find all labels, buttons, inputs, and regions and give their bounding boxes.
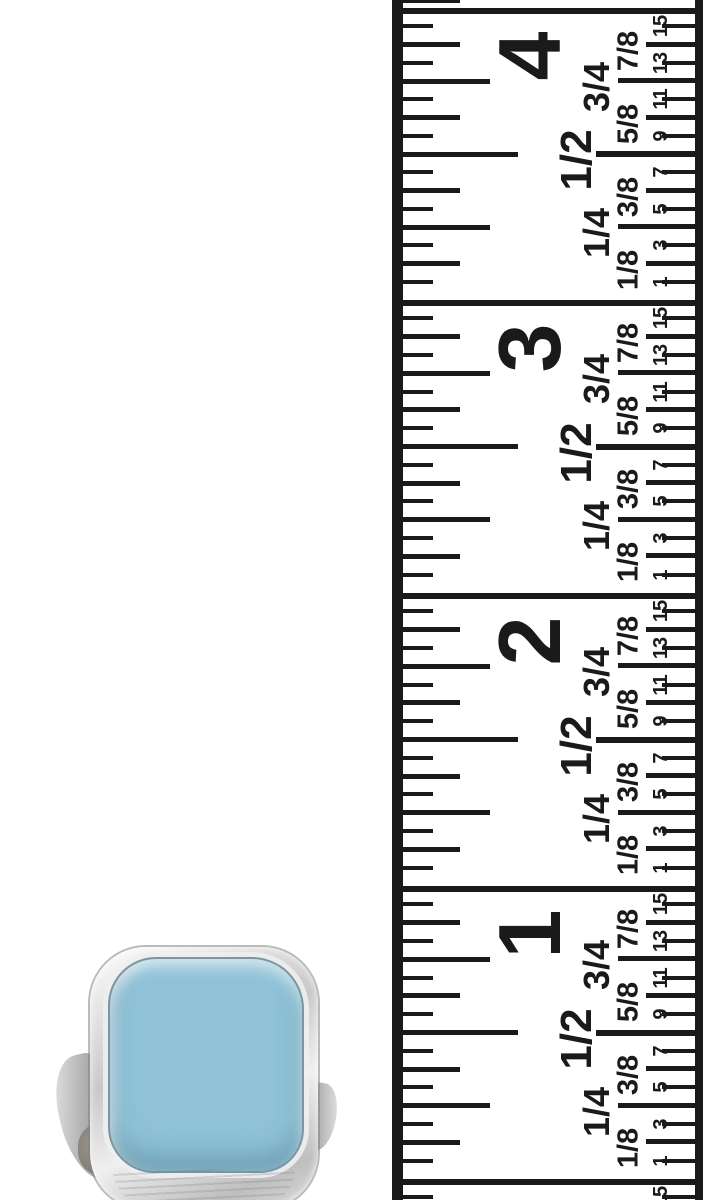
sixteenth-number-text: 13 <box>651 637 671 659</box>
ruler-inch-segment: 211/831/453/871/295/8113/4137/815 <box>390 593 703 886</box>
left-tick <box>403 1103 490 1108</box>
right-tick <box>596 151 695 157</box>
sixteenth-number-text: 5 <box>651 496 671 507</box>
left-tick <box>403 225 490 230</box>
left-tick <box>403 407 460 412</box>
fraction-label-text: 1/8 <box>615 1128 644 1168</box>
sixteenth-number-text: 15 <box>651 1186 671 1200</box>
fraction-label-text: 7/8 <box>615 615 644 655</box>
left-tick <box>403 152 518 157</box>
right-tick <box>646 993 695 998</box>
ruler: 411/831/453/871/295/8113/4137/815311/831… <box>390 0 703 1200</box>
right-tick <box>646 553 695 558</box>
left-tick <box>403 1012 433 1016</box>
left-tick <box>403 1067 460 1072</box>
fraction-label-text: 1/4 <box>579 501 615 551</box>
right-tick <box>646 334 695 339</box>
left-tick <box>403 188 460 193</box>
left-tick <box>403 353 433 357</box>
left-tick <box>403 316 433 320</box>
left-tick <box>403 444 518 449</box>
right-tick <box>646 773 695 778</box>
left-tick <box>403 737 518 742</box>
right-tick <box>646 42 695 47</box>
fraction-label-text: 1/2 <box>555 422 599 483</box>
sixteenth-number-text: 15 <box>651 307 671 329</box>
right-tick <box>618 810 695 815</box>
fraction-label-text: 5/8 <box>615 103 644 143</box>
fraction-label-text: 3/8 <box>615 762 644 802</box>
fraction-label-text: 3/8 <box>615 469 644 509</box>
right-tick <box>646 407 695 412</box>
fraction-label-text: 3/4 <box>579 354 615 404</box>
sixteenth-number-text: 13 <box>651 52 671 74</box>
left-tick <box>403 42 460 47</box>
sixteenth-number-text: 15 <box>651 893 671 915</box>
sixteenth-number-text: 13 <box>651 344 671 366</box>
sixteenth-number-text: 7 <box>651 459 671 470</box>
left-tick <box>403 627 460 632</box>
left-tick <box>403 700 460 705</box>
inch-number-text: 3 <box>486 324 574 373</box>
right-tick <box>646 188 695 193</box>
left-tick <box>403 170 433 174</box>
sixteenth-number-text: 11 <box>651 89 671 110</box>
sixteenth-number-text: 15 <box>651 600 671 622</box>
sixteenth-number-text: 1 <box>651 862 671 873</box>
left-tick <box>403 371 490 376</box>
left-tick <box>403 280 433 284</box>
left-tick <box>403 554 460 559</box>
sixteenth-number-text: 5 <box>651 203 671 214</box>
left-tick <box>403 683 433 687</box>
left-tick <box>403 334 460 339</box>
ruler-inch-segment: 11/831/453/871/295/8113/4137/815 <box>390 1179 703 1200</box>
ruler-inch-segment: 311/831/453/871/295/8113/4137/815 <box>390 300 703 593</box>
sixteenth-number-text: 7 <box>651 167 671 178</box>
left-tick <box>403 243 433 247</box>
left-tick <box>403 939 433 943</box>
fraction-label-text: 1/2 <box>555 129 599 190</box>
right-tick <box>646 627 695 632</box>
inch-line <box>392 8 703 14</box>
left-tick <box>403 1049 433 1053</box>
inch-number-text: 1 <box>486 910 574 959</box>
inch-number-text: 4 <box>486 32 574 81</box>
left-tick <box>403 829 433 833</box>
larimar-stone <box>108 957 304 1173</box>
right-tick <box>596 737 695 743</box>
fraction-label-text: 5/8 <box>615 689 644 729</box>
right-tick <box>618 224 695 229</box>
right-tick <box>618 956 695 961</box>
left-tick <box>403 390 433 394</box>
product-photo: 411/831/453/871/295/8113/4137/815311/831… <box>0 0 703 1200</box>
left-tick <box>403 1159 433 1163</box>
left-tick <box>403 79 490 84</box>
left-tick <box>403 517 490 522</box>
left-tick <box>403 499 433 503</box>
sixteenth-number-text: 7 <box>651 752 671 763</box>
sixteenth-number-text: 3 <box>651 240 671 251</box>
left-tick <box>403 1085 433 1089</box>
fraction-label-text: 1/4 <box>579 1087 615 1137</box>
sixteenth-number-text: 7 <box>651 1045 671 1056</box>
fraction-label-text: 1/8 <box>615 542 644 582</box>
fraction-label-text: 3/4 <box>579 940 615 990</box>
left-tick <box>403 810 490 815</box>
sixteenth-number-text: 1 <box>651 569 671 580</box>
inch-line <box>392 300 703 306</box>
sixteenth-number-text: 3 <box>651 1119 671 1130</box>
ring-photo <box>50 935 345 1200</box>
left-tick <box>403 24 433 28</box>
right-tick <box>618 663 695 668</box>
right-tick <box>646 1139 695 1144</box>
left-tick <box>403 61 433 65</box>
inch-line <box>392 593 703 599</box>
fraction-label-text: 3/4 <box>579 62 615 112</box>
left-tick <box>403 664 490 669</box>
left-tick <box>403 481 460 486</box>
inch-number-text: 2 <box>486 617 574 666</box>
right-tick <box>618 78 695 83</box>
left-tick <box>403 993 460 998</box>
right-tick <box>596 444 695 450</box>
fraction-label-text: 1/8 <box>615 835 644 875</box>
left-tick <box>403 134 433 138</box>
right-tick <box>646 920 695 925</box>
left-tick <box>403 646 433 650</box>
left-tick <box>403 774 460 779</box>
right-tick <box>646 846 695 851</box>
fraction-label-text: 1/2 <box>555 1008 599 1069</box>
ruler-inch-segment: 111/831/453/871/295/8113/4137/815 <box>390 886 703 1179</box>
left-tick <box>403 463 433 467</box>
sixteenth-number-text: 1 <box>651 276 671 287</box>
left-tick <box>403 1195 433 1199</box>
fraction-label-text: 3/8 <box>615 1055 644 1095</box>
left-tick <box>403 573 433 577</box>
left-tick <box>403 847 460 852</box>
sixteenth-number-text: 13 <box>651 930 671 952</box>
left-tick <box>403 1122 433 1126</box>
sixteenth-number-text: 9 <box>651 1009 671 1020</box>
sixteenth-number-text: 9 <box>651 423 671 434</box>
left-tick <box>403 115 460 120</box>
fraction-label-text: 3/8 <box>615 176 644 216</box>
fraction-label-text: 1/4 <box>579 794 615 844</box>
fraction-label-text: 7/8 <box>615 30 644 70</box>
left-tick <box>403 976 433 980</box>
right-tick <box>618 370 695 375</box>
sixteenth-number-text: 9 <box>651 130 671 141</box>
right-tick <box>646 480 695 485</box>
sixteenth-number-text: 5 <box>651 1082 671 1093</box>
right-tick <box>596 1030 695 1036</box>
right-tick <box>618 1103 695 1108</box>
fraction-label-text: 3/4 <box>579 647 615 697</box>
left-tick <box>403 97 433 101</box>
fraction-label-text: 1/8 <box>615 249 644 289</box>
sixteenth-number-text: 11 <box>651 967 671 988</box>
ruler-inch-segment: 411/831/453/871/295/8113/4137/815 <box>390 8 703 300</box>
right-tick <box>646 115 695 120</box>
fraction-label-text: 5/8 <box>615 396 644 436</box>
fraction-label-text: 5/8 <box>615 982 644 1022</box>
left-tick <box>403 609 433 613</box>
left-tick <box>403 1030 518 1035</box>
ruler-partial-tick <box>403 0 460 3</box>
sixteenth-number-text: 3 <box>651 826 671 837</box>
right-tick <box>646 700 695 705</box>
fraction-label-text: 1/4 <box>579 208 615 258</box>
left-tick <box>403 957 490 962</box>
left-tick <box>403 1140 460 1145</box>
sixteenth-number-text: 3 <box>651 533 671 544</box>
left-tick <box>403 426 433 430</box>
sixteenth-number-text: 15 <box>651 15 671 37</box>
left-tick <box>403 207 433 211</box>
right-tick <box>646 261 695 266</box>
sixteenth-number-text: 1 <box>651 1155 671 1166</box>
left-tick <box>403 536 433 540</box>
left-tick <box>403 792 433 796</box>
right-tick <box>618 517 695 522</box>
inch-line <box>392 1179 703 1185</box>
left-tick <box>403 261 460 266</box>
left-tick <box>403 866 433 870</box>
sixteenth-number-text: 11 <box>651 674 671 695</box>
left-tick <box>403 719 433 723</box>
inch-line <box>392 886 703 892</box>
fraction-label-text: 7/8 <box>615 908 644 948</box>
fraction-label-text: 7/8 <box>615 322 644 362</box>
sixteenth-number-text: 5 <box>651 789 671 800</box>
ring-bezel <box>90 947 318 1200</box>
sixteenth-number-text: 11 <box>651 381 671 402</box>
left-tick <box>403 902 433 906</box>
left-tick <box>403 920 460 925</box>
right-tick <box>646 1066 695 1071</box>
left-tick <box>403 756 433 760</box>
fraction-label-text: 1/2 <box>555 715 599 776</box>
sixteenth-number-text: 9 <box>651 716 671 727</box>
